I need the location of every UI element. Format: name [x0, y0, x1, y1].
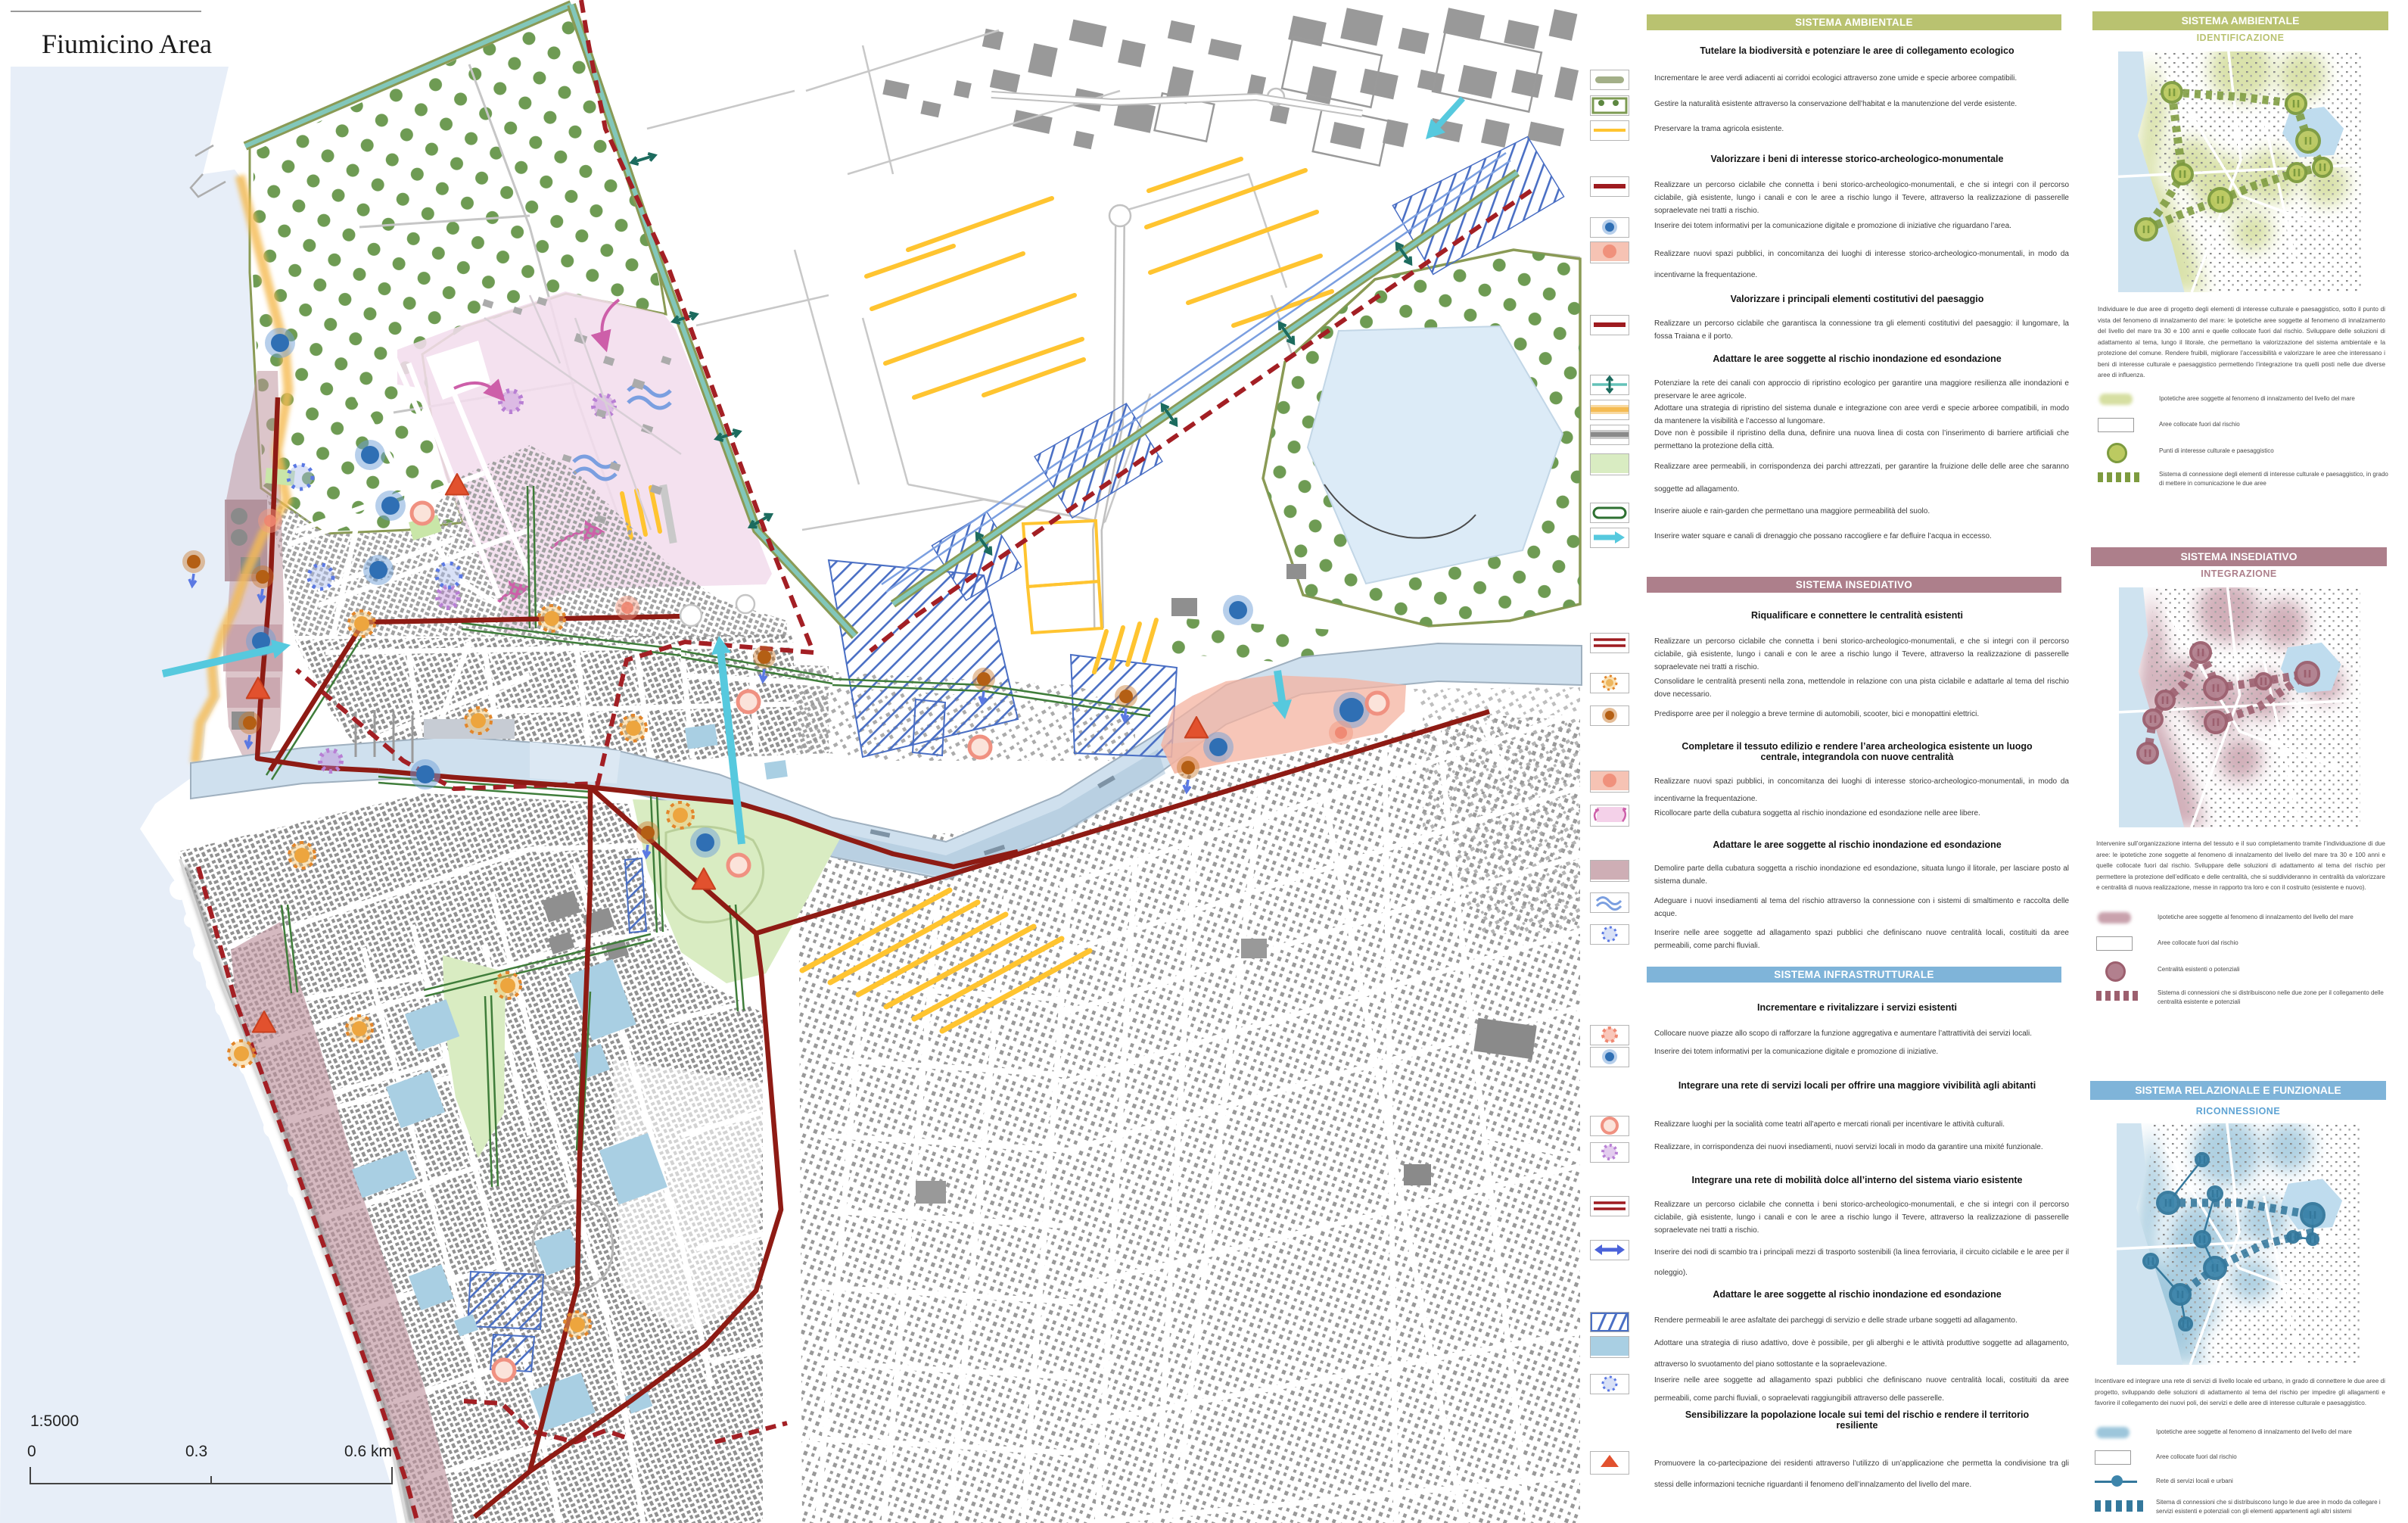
svg-text:0.3: 0.3 [185, 1443, 207, 1460]
svg-text:Fiumicino Area: Fiumicino Area [42, 29, 212, 59]
svg-text:1:5000: 1:5000 [30, 1412, 79, 1430]
svg-text:0.6 km: 0.6 km [344, 1443, 392, 1460]
svg-text:0: 0 [27, 1443, 36, 1460]
